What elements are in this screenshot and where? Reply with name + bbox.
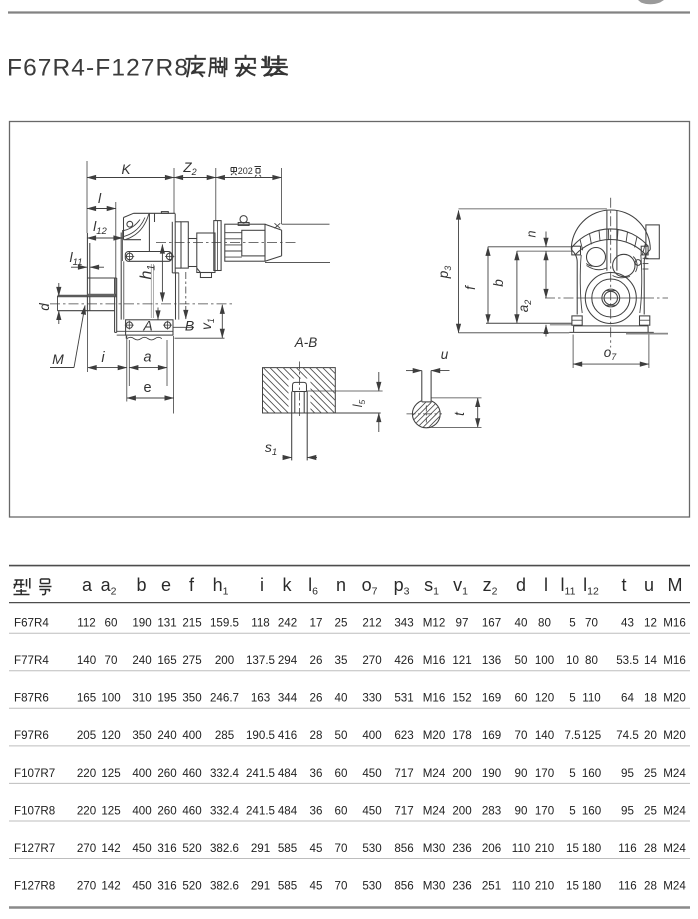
svg-text:110: 110 — [512, 842, 530, 855]
svg-text:100: 100 — [101, 692, 120, 705]
svg-text:382.6: 382.6 — [210, 842, 239, 855]
svg-text:25: 25 — [335, 617, 348, 630]
svg-text:B: B — [185, 318, 194, 334]
svg-text:275: 275 — [182, 654, 201, 667]
svg-text:400: 400 — [132, 804, 151, 817]
svg-text:142: 142 — [101, 842, 120, 855]
svg-text:70: 70 — [105, 654, 118, 667]
svg-text:53.5: 53.5 — [616, 654, 639, 667]
svg-text:26: 26 — [310, 654, 323, 667]
svg-text:M20: M20 — [663, 692, 686, 705]
svg-text:520: 520 — [182, 842, 201, 855]
svg-text:180: 180 — [582, 880, 601, 893]
svg-text:M: M — [52, 351, 64, 367]
svg-text:a: a — [143, 350, 151, 366]
svg-text:210: 210 — [535, 880, 554, 893]
svg-text:260: 260 — [157, 767, 176, 780]
svg-text:12: 12 — [644, 617, 657, 630]
svg-text:116: 116 — [618, 880, 636, 893]
svg-text:202: 202 — [238, 166, 253, 176]
svg-text:856: 856 — [394, 842, 413, 855]
svg-text:170: 170 — [535, 767, 554, 780]
svg-text:25: 25 — [644, 804, 657, 817]
svg-text:95: 95 — [621, 804, 634, 817]
svg-text:5: 5 — [569, 692, 575, 705]
svg-text:7.5: 7.5 — [564, 729, 580, 742]
svg-text:310: 310 — [132, 692, 151, 705]
svg-text:10: 10 — [566, 654, 579, 667]
svg-text:717: 717 — [394, 804, 413, 817]
svg-text:125: 125 — [101, 767, 120, 780]
svg-text:426: 426 — [394, 654, 413, 667]
svg-text:F107R7: F107R7 — [14, 767, 55, 780]
svg-text:b: b — [136, 575, 146, 595]
svg-text:60: 60 — [515, 692, 528, 705]
svg-text:125: 125 — [582, 729, 601, 742]
svg-text:180: 180 — [582, 842, 601, 855]
svg-text:131: 131 — [157, 617, 176, 630]
svg-text:160: 160 — [582, 804, 601, 817]
svg-text:u: u — [644, 575, 654, 595]
svg-text:330: 330 — [362, 692, 381, 705]
svg-text:400: 400 — [182, 729, 201, 742]
svg-text:137.5: 137.5 — [246, 654, 275, 667]
svg-text:e: e — [143, 380, 151, 396]
svg-text:283: 283 — [482, 804, 501, 817]
svg-text:717: 717 — [394, 767, 413, 780]
svg-text:170: 170 — [535, 804, 554, 817]
svg-text:60: 60 — [335, 767, 348, 780]
svg-text:M: M — [668, 575, 683, 595]
svg-text:200: 200 — [452, 804, 471, 817]
svg-text:270: 270 — [362, 654, 381, 667]
svg-text:97: 97 — [456, 617, 469, 630]
svg-text:F87R6: F87R6 — [14, 692, 49, 705]
svg-text:M24: M24 — [663, 767, 686, 780]
svg-text:M24: M24 — [663, 804, 686, 817]
svg-text:200: 200 — [215, 654, 234, 667]
svg-text:36: 36 — [310, 804, 323, 817]
svg-text:M24: M24 — [663, 842, 686, 855]
svg-text:450: 450 — [362, 767, 381, 780]
svg-text:212: 212 — [362, 617, 381, 630]
svg-text:M24: M24 — [423, 767, 446, 780]
svg-text:i: i — [260, 575, 264, 595]
svg-text:M16: M16 — [423, 654, 446, 667]
svg-text:F127R8: F127R8 — [14, 880, 55, 893]
svg-text:k: k — [283, 575, 293, 595]
svg-text:28: 28 — [310, 729, 323, 742]
svg-text:400: 400 — [362, 729, 381, 742]
svg-text:236: 236 — [452, 880, 471, 893]
svg-text:270: 270 — [77, 842, 96, 855]
svg-text:316: 316 — [157, 842, 176, 855]
svg-text:260: 260 — [157, 804, 176, 817]
svg-text:140: 140 — [77, 654, 96, 667]
svg-text:240: 240 — [132, 654, 151, 667]
svg-text:35: 35 — [335, 654, 348, 667]
svg-text:241.5: 241.5 — [246, 804, 275, 817]
svg-text:416: 416 — [278, 729, 297, 742]
svg-text:200: 200 — [452, 767, 471, 780]
svg-text:205: 205 — [77, 729, 96, 742]
svg-text:251: 251 — [482, 880, 501, 893]
svg-text:110: 110 — [582, 692, 600, 705]
svg-text:623: 623 — [394, 729, 413, 742]
svg-text:80: 80 — [585, 654, 598, 667]
svg-text:l: l — [544, 575, 548, 595]
svg-text:165: 165 — [77, 692, 96, 705]
svg-text:90: 90 — [515, 767, 528, 780]
svg-text:344: 344 — [278, 692, 298, 705]
svg-text:17: 17 — [310, 617, 323, 630]
svg-text:125: 125 — [101, 804, 120, 817]
svg-text:294: 294 — [278, 654, 298, 667]
svg-text:A-B: A-B — [294, 335, 318, 350]
svg-text:M24: M24 — [663, 880, 686, 893]
svg-text:M16: M16 — [423, 692, 446, 705]
svg-text:5: 5 — [569, 804, 575, 817]
svg-text:60: 60 — [105, 617, 118, 630]
svg-text:M20: M20 — [663, 729, 686, 742]
svg-text:169: 169 — [482, 729, 501, 742]
svg-text:n: n — [336, 575, 346, 595]
svg-text:241.5: 241.5 — [246, 767, 275, 780]
svg-text:178: 178 — [452, 729, 471, 742]
svg-text:240: 240 — [157, 729, 176, 742]
svg-text:26: 26 — [310, 692, 323, 705]
svg-text:50: 50 — [515, 654, 528, 667]
svg-text:u: u — [441, 347, 449, 362]
svg-text:121: 121 — [452, 654, 471, 667]
svg-text:F127R7: F127R7 — [14, 842, 55, 855]
svg-text:285: 285 — [215, 729, 234, 742]
svg-text:M16: M16 — [663, 617, 686, 630]
svg-text:d: d — [37, 303, 52, 311]
svg-text:152: 152 — [452, 692, 471, 705]
svg-text:343: 343 — [394, 617, 413, 630]
svg-text:332.4: 332.4 — [210, 767, 240, 780]
svg-text:190.5: 190.5 — [246, 729, 275, 742]
svg-text:64: 64 — [621, 692, 634, 705]
svg-text:195: 195 — [157, 692, 176, 705]
svg-text:236: 236 — [452, 842, 471, 855]
svg-text:n: n — [525, 230, 539, 237]
svg-text:80: 80 — [538, 617, 551, 630]
svg-text:M30: M30 — [423, 880, 446, 893]
svg-text:95: 95 — [621, 767, 634, 780]
svg-text:F67R4: F67R4 — [14, 617, 49, 630]
svg-text:M20: M20 — [423, 729, 446, 742]
svg-text:856: 856 — [394, 880, 413, 893]
svg-text:M16: M16 — [663, 654, 686, 667]
svg-text:316: 316 — [157, 880, 176, 893]
svg-text:90: 90 — [515, 804, 528, 817]
svg-text:118: 118 — [251, 617, 269, 630]
svg-text:A: A — [142, 318, 152, 334]
svg-text:159.5: 159.5 — [210, 617, 239, 630]
svg-text:110: 110 — [512, 880, 530, 893]
svg-text:167: 167 — [482, 617, 501, 630]
svg-text:142: 142 — [101, 880, 120, 893]
svg-text:M24: M24 — [423, 804, 446, 817]
svg-text:136: 136 — [482, 654, 501, 667]
svg-text:45: 45 — [310, 880, 323, 893]
svg-text:140: 140 — [535, 729, 554, 742]
svg-text:160: 160 — [582, 767, 601, 780]
svg-text:K: K — [121, 162, 131, 177]
svg-text:5: 5 — [569, 767, 575, 780]
svg-text:40: 40 — [335, 692, 348, 705]
svg-text:291: 291 — [251, 880, 270, 893]
svg-text:70: 70 — [515, 729, 528, 742]
svg-text:60: 60 — [335, 804, 348, 817]
svg-text:28: 28 — [644, 842, 657, 855]
svg-text:242: 242 — [278, 617, 297, 630]
svg-text:190: 190 — [132, 617, 151, 630]
svg-text:484: 484 — [278, 767, 298, 780]
svg-text:270: 270 — [77, 880, 96, 893]
svg-text:382.6: 382.6 — [210, 880, 239, 893]
svg-text:e: e — [161, 575, 171, 595]
svg-text:45: 45 — [310, 842, 323, 855]
svg-text:246.7: 246.7 — [210, 692, 239, 705]
svg-text:190: 190 — [482, 767, 501, 780]
svg-text:520: 520 — [182, 880, 201, 893]
svg-text:F77R4: F77R4 — [14, 654, 49, 667]
svg-text:M12: M12 — [423, 617, 446, 630]
svg-text:43: 43 — [621, 617, 634, 630]
svg-text:40: 40 — [515, 617, 528, 630]
svg-text:d: d — [516, 575, 526, 595]
svg-text:M30: M30 — [423, 842, 446, 855]
svg-text:70: 70 — [585, 617, 598, 630]
svg-text:585: 585 — [278, 842, 297, 855]
svg-text:350: 350 — [182, 692, 201, 705]
svg-text:25: 25 — [644, 767, 657, 780]
svg-text:F67R4-F127R8: F67R4-F127R8 — [7, 55, 189, 82]
svg-text:460: 460 — [182, 767, 201, 780]
svg-text:220: 220 — [77, 767, 96, 780]
svg-text:350: 350 — [132, 729, 151, 742]
svg-text:15: 15 — [566, 880, 579, 893]
svg-text:F107R8: F107R8 — [14, 804, 55, 817]
svg-text:15: 15 — [566, 842, 579, 855]
svg-text:531: 531 — [394, 692, 413, 705]
svg-text:70: 70 — [335, 842, 348, 855]
svg-text:206: 206 — [482, 842, 501, 855]
svg-text:a: a — [82, 575, 93, 595]
svg-text:t: t — [621, 575, 626, 595]
svg-text:450: 450 — [132, 842, 151, 855]
svg-text:5: 5 — [569, 617, 575, 630]
svg-text:120: 120 — [101, 729, 120, 742]
svg-text:28: 28 — [644, 880, 657, 893]
svg-text:530: 530 — [362, 842, 381, 855]
svg-text:163: 163 — [251, 692, 270, 705]
svg-text:20: 20 — [644, 729, 657, 742]
svg-text:460: 460 — [182, 804, 201, 817]
svg-text:36: 36 — [310, 767, 323, 780]
svg-text:400: 400 — [132, 767, 151, 780]
svg-text:210: 210 — [535, 842, 554, 855]
svg-text:18: 18 — [644, 692, 657, 705]
svg-text:484: 484 — [278, 804, 298, 817]
svg-text:100: 100 — [535, 654, 554, 667]
svg-text:450: 450 — [362, 804, 381, 817]
svg-text:215: 215 — [182, 617, 201, 630]
svg-text:F97R6: F97R6 — [14, 729, 49, 742]
svg-text:450: 450 — [132, 880, 151, 893]
svg-text:70: 70 — [335, 880, 348, 893]
svg-text:165: 165 — [157, 654, 176, 667]
svg-text:530: 530 — [362, 880, 381, 893]
svg-text:14: 14 — [644, 654, 657, 667]
svg-text:120: 120 — [535, 692, 554, 705]
svg-text:112: 112 — [77, 617, 95, 630]
svg-text:585: 585 — [278, 880, 297, 893]
svg-text:332.4: 332.4 — [210, 804, 240, 817]
svg-text:116: 116 — [618, 842, 636, 855]
svg-text:169: 169 — [482, 692, 501, 705]
svg-text:291: 291 — [251, 842, 270, 855]
svg-text:50: 50 — [335, 729, 348, 742]
svg-text:220: 220 — [77, 804, 96, 817]
svg-text:74.5: 74.5 — [616, 729, 639, 742]
svg-text:b: b — [491, 279, 506, 287]
